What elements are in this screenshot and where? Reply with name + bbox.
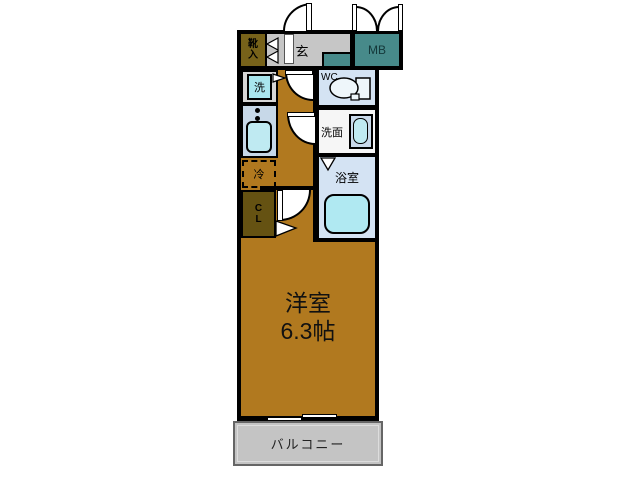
washer-label: 洗 <box>254 79 265 95</box>
entrance-door-inner-leaf <box>284 34 294 64</box>
refrigerator-label: 冷 <box>254 166 265 182</box>
toilet-icon <box>327 76 372 102</box>
washroom-door-leaf <box>287 112 315 117</box>
bathtub <box>324 194 370 234</box>
washroom-label: 洗面 <box>321 124 343 140</box>
sliding-window-pane-right <box>302 414 337 418</box>
meter-box: MB <box>355 34 399 66</box>
closet-folding-door-icon <box>275 220 297 237</box>
refrigerator-space: 冷 <box>242 160 276 188</box>
main-room: 洋室 6.3帖 <box>241 290 375 345</box>
meter-box-label: MB <box>368 43 386 57</box>
floor-plan: 玄 靴 入 MB 洗 冷 C L WC <box>0 0 640 480</box>
shoe-storage: 靴 入 <box>241 34 267 66</box>
wall-bath-room <box>313 238 379 242</box>
balcony-label: バルコニー <box>235 423 381 464</box>
main-room-size: 6.3帖 <box>241 318 375 346</box>
entrance-utility-box <box>322 52 350 66</box>
entrance-door-leaf <box>306 3 312 31</box>
shoe-folding-door-icon <box>266 37 279 65</box>
shoe-storage-label-2: 入 <box>248 50 258 62</box>
meter-box-door-leaf-right <box>398 4 403 31</box>
closet: C L <box>241 190 276 238</box>
room-door-leaf <box>277 190 283 221</box>
meter-box-door-leaf-left <box>352 4 357 31</box>
washroom-sink-basin <box>353 118 368 144</box>
washer-unit: 洗 <box>247 74 272 100</box>
entrance-step-arrow-icon <box>272 73 286 83</box>
toilet-door-leaf <box>285 70 313 75</box>
shoe-storage-label-1: 靴 <box>248 39 258 51</box>
burner-dot-1 <box>255 108 260 113</box>
bathroom-folding-door-icon <box>320 157 336 172</box>
closet-label-1: C <box>255 203 262 215</box>
main-room-name: 洋室 <box>241 290 375 318</box>
kitchen-sink <box>246 121 272 153</box>
meter-box-door-swing-left <box>356 6 378 31</box>
balcony: バルコニー <box>233 421 383 466</box>
meter-box-door-swing-right <box>377 6 399 31</box>
closet-label-2: L <box>255 214 261 226</box>
